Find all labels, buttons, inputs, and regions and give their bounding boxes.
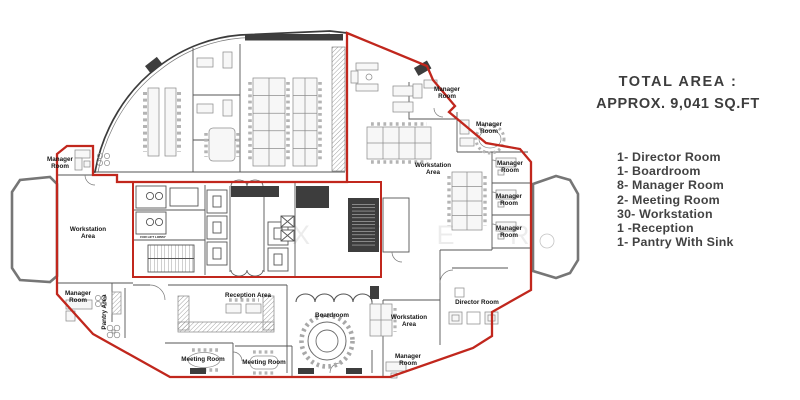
room-list-item: 2- Meeting Room <box>617 193 734 207</box>
room-list-item: 8- Manager Room <box>617 178 734 192</box>
room-list-item: 30- Workstation <box>617 207 734 221</box>
terrace-left <box>12 177 57 282</box>
label-meeting-room-1: Meeting Room <box>181 356 225 363</box>
pillar-dark <box>370 286 379 299</box>
floor-plan: X T E R I O ManagerRoomWorkstationAreaMa… <box>0 0 586 400</box>
watermark: X T E R I O <box>292 220 586 250</box>
dark-band-1 <box>231 186 279 197</box>
total-area-title: TOTAL AREA : <box>558 74 798 90</box>
label-director-room: Director Room <box>455 299 499 306</box>
label-lift-lobby: FOR LIFT LOBBY <box>140 235 167 239</box>
label-boardroom: Boardroom <box>315 312 349 319</box>
floor-plan-page: X T E R I O ManagerRoomWorkstationAreaMa… <box>0 0 800 400</box>
room-list-item: 1- Director Room <box>617 150 734 164</box>
label-meeting-room-2: Meeting Room <box>242 359 286 366</box>
room-list-item: 1 -Reception <box>617 221 734 235</box>
curtain-wall-hatch <box>332 47 345 171</box>
total-area-value: APPROX. 9,041 SQ.FT <box>558 96 798 112</box>
room-list-item: 1- Boardroom <box>617 164 734 178</box>
room-list: 1- Director Room1- Boardroom8- Manager R… <box>617 150 734 249</box>
label-manager-room-top-1: ManagerRoom <box>434 86 460 100</box>
dark-band-2 <box>296 186 329 208</box>
room-list-item: 1- Pantry With Sink <box>617 235 734 249</box>
info-panel: TOTAL AREA : APPROX. 9,041 SQ.FT 1- Dire… <box>558 0 800 400</box>
label-reception-area: Reception Area <box>225 292 271 299</box>
label-pantry-area: Pantry Area <box>101 294 108 330</box>
top-wall-band <box>245 34 343 41</box>
